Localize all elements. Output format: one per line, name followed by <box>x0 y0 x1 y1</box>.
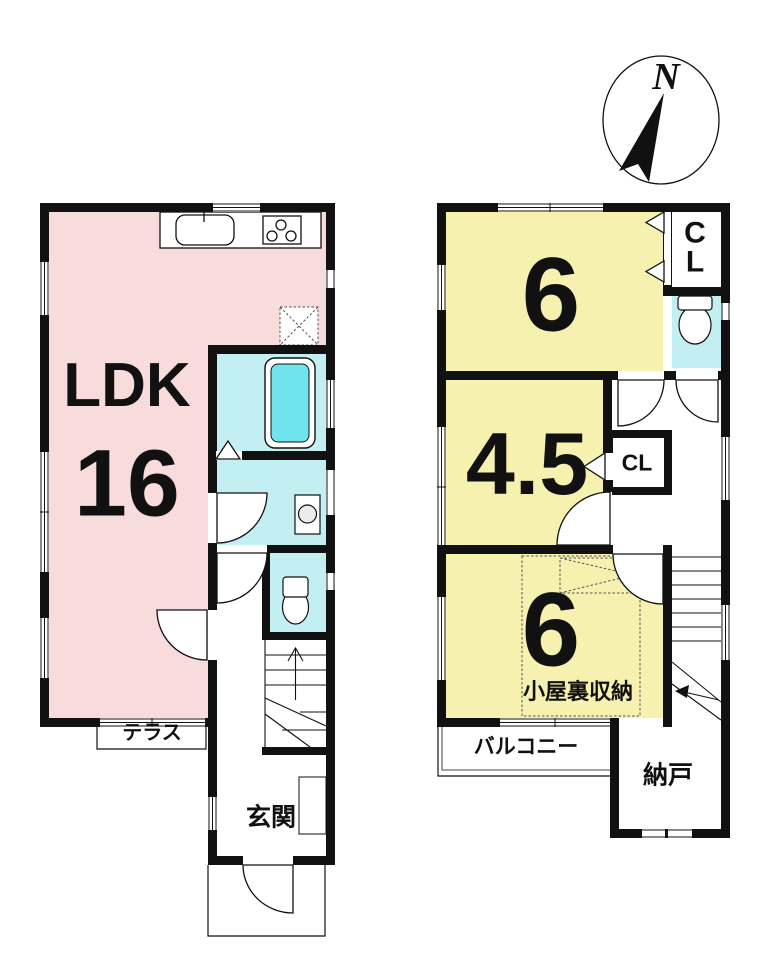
attic-storage-label: 小屋裏収納 <box>523 681 633 703</box>
room6-bottom-size-label: 6 <box>522 578 580 683</box>
north-label: N <box>652 58 679 96</box>
shoe-cabinet <box>299 777 326 834</box>
ldk-size-label: 16 <box>74 437 180 532</box>
entrance-label: 玄関 <box>246 806 296 831</box>
toilet-1f <box>283 577 309 624</box>
toilet-2f <box>678 296 712 344</box>
closet-top-label: CL <box>681 220 710 277</box>
entrance-door-arc <box>243 865 293 913</box>
bathtub <box>265 358 315 448</box>
washroom-sink <box>295 495 320 534</box>
balcony-label: バルコニー <box>474 737 579 758</box>
compass-needle-icon <box>619 93 664 182</box>
ldk-label: LDK <box>63 355 190 417</box>
floor-plan-image: N LDK 16 テラス 玄関 6 CL 4.5 CL 6 小屋裏収納 バルコニ… <box>0 0 765 980</box>
kitchen-sink <box>176 215 234 245</box>
floor-hatch-box <box>280 307 318 345</box>
room6-top-size-label: 6 <box>522 243 580 348</box>
room45-size-label: 4.5 <box>466 420 588 508</box>
storage-room-label: 納戸 <box>643 764 693 789</box>
kitchen-counter <box>160 206 321 248</box>
closet-mid-label: CL <box>622 452 653 475</box>
terrace-label: テラス <box>122 723 182 743</box>
